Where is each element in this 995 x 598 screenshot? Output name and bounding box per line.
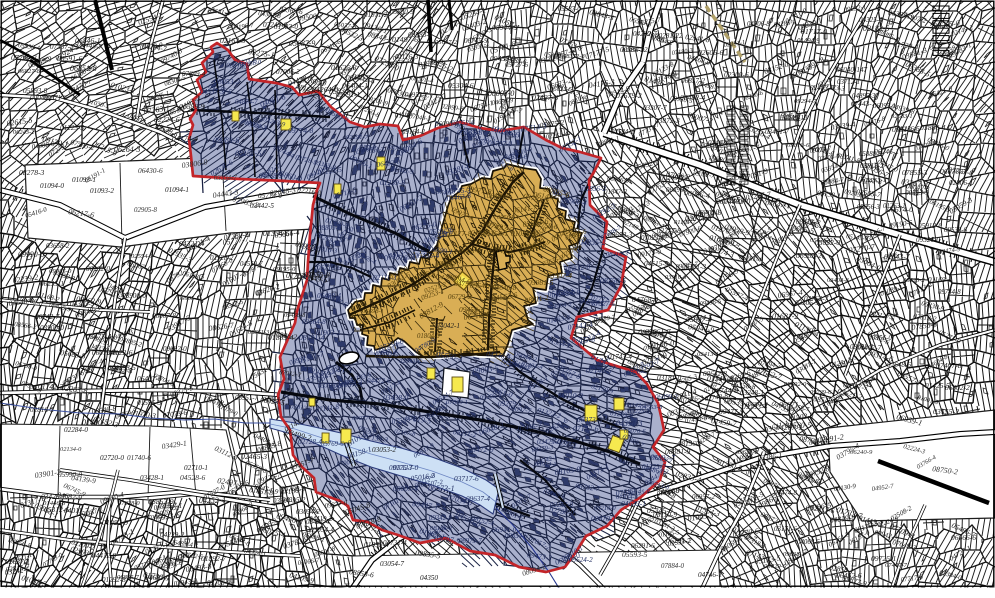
svg-text:02163-5: 02163-5 <box>220 36 246 45</box>
svg-text:01595-3: 01595-3 <box>137 398 162 407</box>
svg-text:03334-7: 03334-7 <box>214 175 237 182</box>
svg-text:03461-7: 03461-7 <box>765 128 789 136</box>
svg-text:08181-2: 08181-2 <box>850 344 874 351</box>
svg-text:09583-4: 09583-4 <box>408 30 433 39</box>
svg-text:03052-6: 03052-6 <box>451 119 475 127</box>
svg-text:04774-4: 04774-4 <box>172 134 198 143</box>
svg-text:04292-7: 04292-7 <box>633 30 657 38</box>
svg-text:06837-2: 06837-2 <box>681 77 705 85</box>
svg-text:02762-7: 02762-7 <box>804 294 829 303</box>
svg-text:02554-9: 02554-9 <box>131 253 154 260</box>
svg-text:04611-7: 04611-7 <box>145 573 172 582</box>
svg-text:06243-2: 06243-2 <box>13 129 35 136</box>
svg-text:01093-2: 01093-2 <box>90 187 114 195</box>
svg-text:03258-1: 03258-1 <box>483 229 508 238</box>
svg-text:09468-8: 09468-8 <box>284 312 306 319</box>
svg-text:05022-0: 05022-0 <box>815 238 840 247</box>
svg-text:03155-2: 03155-2 <box>933 407 959 416</box>
svg-text:09905-5: 09905-5 <box>178 295 200 302</box>
svg-text:05312-6: 05312-6 <box>44 505 69 514</box>
svg-text:02291-7: 02291-7 <box>346 134 369 141</box>
svg-text:05907-4: 05907-4 <box>547 271 572 280</box>
svg-text:05769-6: 05769-6 <box>321 441 344 448</box>
svg-text:01031-9: 01031-9 <box>511 229 536 238</box>
svg-text:06702-9: 06702-9 <box>696 208 722 217</box>
svg-text:02993-6: 02993-6 <box>399 358 422 365</box>
svg-text:02224-6: 02224-6 <box>154 115 180 124</box>
svg-text:04559-7: 04559-7 <box>240 261 263 268</box>
svg-text:06827-8: 06827-8 <box>18 68 41 75</box>
svg-text:06291-6: 06291-6 <box>631 542 655 550</box>
svg-text:09326-0: 09326-0 <box>916 236 940 244</box>
svg-text:03054-4: 03054-4 <box>310 526 334 534</box>
svg-text:08256-5: 08256-5 <box>897 126 920 133</box>
svg-text:06851-8: 06851-8 <box>70 64 97 73</box>
svg-text:09077-6: 09077-6 <box>352 415 375 422</box>
svg-text:07249-6: 07249-6 <box>263 20 288 29</box>
svg-text:05888-8: 05888-8 <box>859 151 882 158</box>
svg-text:05700-8: 05700-8 <box>281 484 306 493</box>
svg-text:04042-1: 04042-1 <box>436 322 460 330</box>
svg-text:07447-7: 07447-7 <box>885 562 908 569</box>
svg-text:01494-9: 01494-9 <box>797 38 820 45</box>
svg-text:04706-8: 04706-8 <box>747 21 770 28</box>
svg-text:02720-0: 02720-0 <box>100 454 124 462</box>
svg-text:06431-8: 06431-8 <box>459 248 481 255</box>
svg-text:09571-6: 09571-6 <box>44 95 67 102</box>
svg-text:01400-5: 01400-5 <box>82 418 109 427</box>
svg-text:07006-2: 07006-2 <box>276 68 300 76</box>
svg-text:01239-8: 01239-8 <box>380 178 405 187</box>
svg-text:06729-8: 06729-8 <box>448 294 472 301</box>
svg-text:06973-7: 06973-7 <box>459 538 482 545</box>
svg-text:08481-4: 08481-4 <box>306 518 330 526</box>
svg-text:06407-8: 06407-8 <box>137 374 162 383</box>
svg-text:03054-7: 03054-7 <box>380 560 404 568</box>
svg-text:09692-0: 09692-0 <box>163 345 187 353</box>
svg-text:09458-8: 09458-8 <box>490 54 516 63</box>
svg-text:08142-2: 08142-2 <box>625 402 647 409</box>
svg-text:09195-0: 09195-0 <box>273 266 296 273</box>
svg-text:04582-6: 04582-6 <box>504 153 528 161</box>
svg-text:03910-6: 03910-6 <box>665 274 687 281</box>
svg-text:04264-0: 04264-0 <box>312 85 338 94</box>
svg-text:01263-1: 01263-1 <box>883 203 906 210</box>
svg-text:08750-5: 08750-5 <box>600 276 626 285</box>
svg-text:09638-2: 09638-2 <box>783 551 806 558</box>
svg-text:04068-5: 04068-5 <box>797 539 821 546</box>
svg-text:05587-0: 05587-0 <box>558 6 581 13</box>
svg-text:08005-4: 08005-4 <box>393 484 418 493</box>
svg-text:09294-7: 09294-7 <box>794 98 817 105</box>
svg-text:01169-1: 01169-1 <box>928 276 951 284</box>
svg-text:08152-5: 08152-5 <box>235 149 261 158</box>
svg-text:07800-1: 07800-1 <box>446 399 468 406</box>
svg-text:07828-0: 07828-0 <box>118 500 140 507</box>
svg-text:01743-4: 01743-4 <box>608 353 632 361</box>
svg-text:08861-3: 08861-3 <box>248 329 269 336</box>
svg-text:06573-1: 06573-1 <box>428 484 455 493</box>
svg-text:03053-2: 03053-2 <box>372 446 396 454</box>
svg-text:06941-0: 06941-0 <box>492 525 517 534</box>
svg-text:01225-5: 01225-5 <box>60 124 84 132</box>
svg-text:07877-8: 07877-8 <box>572 337 596 344</box>
svg-text:03428-1: 03428-1 <box>140 474 164 482</box>
svg-text:03886-4: 03886-4 <box>920 123 946 132</box>
svg-text:08857-9: 08857-9 <box>148 497 174 506</box>
svg-text:01225-7: 01225-7 <box>642 463 666 471</box>
svg-text:06698-1: 06698-1 <box>362 308 384 315</box>
svg-text:05607-2: 05607-2 <box>435 39 458 46</box>
svg-text:01717-0: 01717-0 <box>801 27 827 36</box>
svg-text:06855-7: 06855-7 <box>117 574 140 581</box>
svg-text:02457-2: 02457-2 <box>466 308 490 316</box>
svg-text:02728-4: 02728-4 <box>298 438 322 446</box>
svg-text:07584-2: 07584-2 <box>611 129 635 136</box>
svg-text:03564-8: 03564-8 <box>302 318 326 326</box>
svg-text:09477-9: 09477-9 <box>719 407 744 416</box>
svg-text:09985-0: 09985-0 <box>49 268 72 275</box>
svg-text:09070-6: 09070-6 <box>624 428 646 435</box>
svg-text:06508-7: 06508-7 <box>787 406 810 413</box>
svg-text:09530-6: 09530-6 <box>944 227 968 234</box>
svg-text:05593-5: 05593-5 <box>622 550 648 559</box>
svg-text:09342-8: 09342-8 <box>429 515 452 522</box>
svg-text:02606-6: 02606-6 <box>698 48 724 57</box>
svg-text:04412-9: 04412-9 <box>92 551 117 560</box>
svg-text:06430-6: 06430-6 <box>138 166 163 175</box>
svg-text:04267-1: 04267-1 <box>776 423 802 432</box>
svg-text:06012-5: 06012-5 <box>550 86 573 93</box>
svg-text:05880-9: 05880-9 <box>390 8 414 16</box>
svg-text:02816-2: 02816-2 <box>30 406 54 414</box>
svg-text:02413-1: 02413-1 <box>697 351 719 358</box>
svg-text:01885-4: 01885-4 <box>268 333 294 342</box>
svg-text:02792-5: 02792-5 <box>375 352 399 359</box>
svg-text:09774-8: 09774-8 <box>288 126 314 135</box>
svg-text:06010-0: 06010-0 <box>558 391 583 400</box>
svg-text:06957-2: 06957-2 <box>692 494 716 501</box>
svg-text:09707-0: 09707-0 <box>488 140 512 148</box>
svg-text:02284-0: 02284-0 <box>64 426 88 434</box>
svg-text:01971-2: 01971-2 <box>364 11 388 19</box>
svg-text:02111-3: 02111-3 <box>373 273 397 282</box>
svg-text:01742-7: 01742-7 <box>38 382 65 391</box>
svg-text:04528-6: 04528-6 <box>180 473 206 482</box>
svg-text:03323-0: 03323-0 <box>393 463 419 472</box>
svg-text:02905-8: 02905-8 <box>134 207 158 214</box>
svg-text:05791-1: 05791-1 <box>336 91 360 99</box>
svg-text:02182-5: 02182-5 <box>863 24 889 33</box>
svg-text:02870-1: 02870-1 <box>591 514 616 523</box>
svg-text:08944-9: 08944-9 <box>492 23 518 32</box>
svg-text:09744-8: 09744-8 <box>938 289 961 296</box>
svg-text:08278-3: 08278-3 <box>19 168 45 177</box>
svg-text:03856-2: 03856-2 <box>582 185 606 193</box>
svg-text:01892-7: 01892-7 <box>201 554 226 563</box>
svg-text:07443-7: 07443-7 <box>851 99 876 108</box>
svg-text:09810-6: 09810-6 <box>787 142 810 149</box>
svg-text:04731-4: 04731-4 <box>383 539 407 547</box>
svg-text:04350: 04350 <box>420 574 438 582</box>
svg-text:05727-6: 05727-6 <box>505 62 529 69</box>
svg-text:01101-7: 01101-7 <box>674 219 696 226</box>
svg-text:06745-9: 06745-9 <box>464 37 488 45</box>
svg-text:07337-3: 07337-3 <box>50 43 74 51</box>
svg-text:02710-1: 02710-1 <box>184 464 208 472</box>
svg-text:09983-6: 09983-6 <box>213 136 239 145</box>
svg-text:05912-0: 05912-0 <box>918 222 942 230</box>
svg-text:09624-2: 09624-2 <box>569 556 593 564</box>
svg-text:01198-5: 01198-5 <box>112 363 136 372</box>
svg-text:01425-5: 01425-5 <box>925 381 950 390</box>
svg-text:06742-7: 06742-7 <box>35 312 60 321</box>
svg-text:06181-3: 06181-3 <box>682 263 706 271</box>
svg-text:06666-6: 06666-6 <box>951 533 976 542</box>
svg-text:08658-3: 08658-3 <box>608 230 633 239</box>
svg-text:03307-7: 03307-7 <box>643 104 667 112</box>
svg-text:07142-6: 07142-6 <box>573 424 599 433</box>
svg-text:01847-2: 01847-2 <box>604 189 628 196</box>
svg-text:02427-6: 02427-6 <box>532 93 558 102</box>
svg-text:05745-3: 05745-3 <box>446 186 471 195</box>
svg-text:02806-1: 02806-1 <box>949 179 973 187</box>
svg-text:09654-6: 09654-6 <box>505 533 528 540</box>
svg-text:06893-7: 06893-7 <box>651 454 675 462</box>
svg-text:04796-8: 04796-8 <box>454 279 479 288</box>
svg-text:04229-2: 04229-2 <box>160 530 185 539</box>
svg-text:06007-8: 06007-8 <box>152 312 176 320</box>
svg-text:02564-4: 02564-4 <box>497 214 519 221</box>
svg-text:03171-6: 03171-6 <box>774 526 798 533</box>
svg-text:09164-2: 09164-2 <box>402 129 426 136</box>
svg-text:05687-9: 05687-9 <box>289 39 315 48</box>
svg-text:07066-7: 07066-7 <box>144 514 167 521</box>
svg-text:06404-1: 06404-1 <box>342 81 368 90</box>
svg-text:03900-0: 03900-0 <box>40 324 64 332</box>
svg-text:08951-7: 08951-7 <box>235 395 259 402</box>
svg-text:07294-2: 07294-2 <box>11 53 37 62</box>
svg-text:08156-2: 08156-2 <box>678 440 702 448</box>
svg-text:05304-6: 05304-6 <box>448 81 474 90</box>
svg-text:06235-1: 06235-1 <box>40 280 64 288</box>
svg-text:02134-0: 02134-0 <box>60 446 82 453</box>
svg-text:04874-7: 04874-7 <box>235 99 258 106</box>
svg-text:01681-2: 01681-2 <box>772 312 798 321</box>
svg-text:07884-0: 07884-0 <box>661 563 685 570</box>
svg-text:00102-0: 00102-0 <box>86 265 110 273</box>
svg-text:04325-4: 04325-4 <box>859 16 883 24</box>
svg-text:01082-9: 01082-9 <box>102 518 128 527</box>
svg-text:01094-1: 01094-1 <box>165 186 189 194</box>
svg-text:08210-3: 08210-3 <box>606 251 629 258</box>
svg-text:03408-8: 03408-8 <box>827 277 849 284</box>
svg-text:07555-8: 07555-8 <box>304 270 330 279</box>
svg-text:06846-1: 06846-1 <box>75 36 101 45</box>
svg-text:02454-0: 02454-0 <box>622 47 645 54</box>
svg-text:01094-0: 01094-0 <box>40 182 64 190</box>
svg-text:04315-2: 04315-2 <box>282 496 306 504</box>
svg-text:09591-6: 09591-6 <box>57 54 83 63</box>
svg-text:07649-4: 07649-4 <box>182 70 206 78</box>
svg-text:09990-5: 09990-5 <box>18 250 44 259</box>
svg-text:06373-5: 06373-5 <box>577 415 602 424</box>
svg-text:05915-2: 05915-2 <box>860 162 884 170</box>
svg-text:01740-6: 01740-6 <box>127 454 151 462</box>
svg-text:06040-147: 06040-147 <box>836 66 868 74</box>
svg-text:09602-0: 09602-0 <box>784 381 807 388</box>
svg-text:08472-9: 08472-9 <box>468 445 494 454</box>
svg-text:05893-8: 05893-8 <box>23 86 48 95</box>
svg-text:05345-0: 05345-0 <box>647 506 673 515</box>
svg-text:03717-6: 03717-6 <box>454 474 479 483</box>
svg-text:04746-1: 04746-1 <box>698 571 722 579</box>
svg-text:06496-0: 06496-0 <box>487 193 511 200</box>
svg-text:02300-6: 02300-6 <box>724 70 749 79</box>
svg-text:08191-4: 08191-4 <box>299 333 325 342</box>
svg-text:07855-3: 07855-3 <box>902 168 928 177</box>
svg-text:03210-0: 03210-0 <box>594 505 616 512</box>
svg-text:06983-2: 06983-2 <box>796 251 822 260</box>
svg-text:04895-3: 04895-3 <box>852 92 876 100</box>
svg-text:04391-3: 04391-3 <box>616 419 642 428</box>
svg-text:09725-1: 09725-1 <box>871 554 896 563</box>
svg-text:05656-3: 05656-3 <box>857 204 880 211</box>
svg-text:06452-6: 06452-6 <box>836 571 862 580</box>
svg-text:04515-5: 04515-5 <box>644 259 669 268</box>
svg-text:03658-2: 03658-2 <box>46 242 70 250</box>
